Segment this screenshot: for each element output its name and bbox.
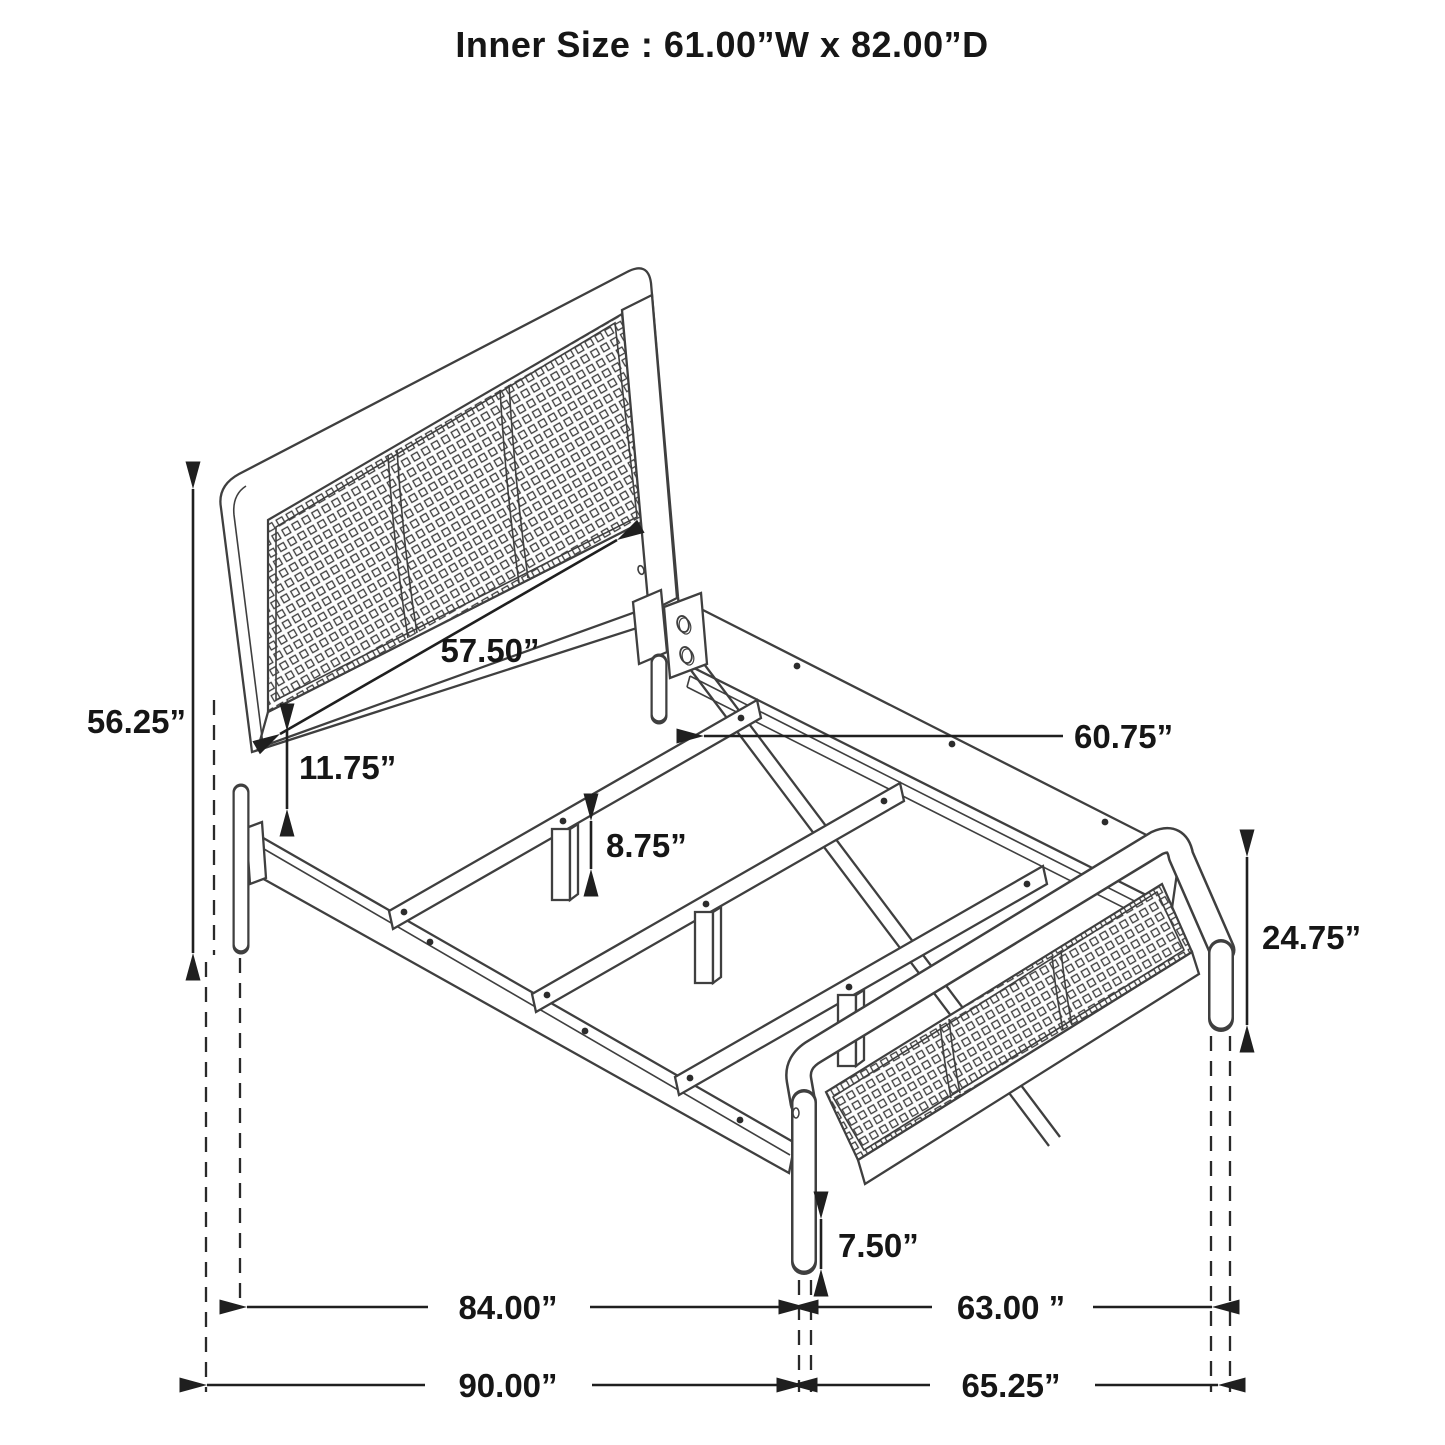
dim-side-rail-length: 84.00” [458,1289,557,1326]
rail-bracket [664,593,707,678]
dim-overall-length: 90.00” [458,1367,557,1404]
dim-slat-leg-height: 8.75” [606,827,687,864]
bed-dimension-diagram: Inner Size : 61.00”W x 82.00”D [0,0,1445,1445]
near-side-rail [246,822,795,1173]
dim-footboard-height: 24.75” [1262,919,1361,956]
dim-rail-clearance: 11.75” [299,749,396,786]
dim-headboard-rail-length: 57.50” [440,632,539,669]
dim-headboard-height: 56.25” [87,703,186,740]
bed-frame-drawing: Inner Size : 61.00”W x 82.00”D [0,0,1445,1445]
dim-footboard-leg-height: 7.50” [838,1227,919,1264]
dim-slat-length: 60.75” [1074,718,1173,755]
dim-footboard-span: 63.00 ” [957,1289,1065,1326]
dim-overall-width: 65.25” [961,1367,1060,1404]
page-title: Inner Size : 61.00”W x 82.00”D [455,24,988,65]
